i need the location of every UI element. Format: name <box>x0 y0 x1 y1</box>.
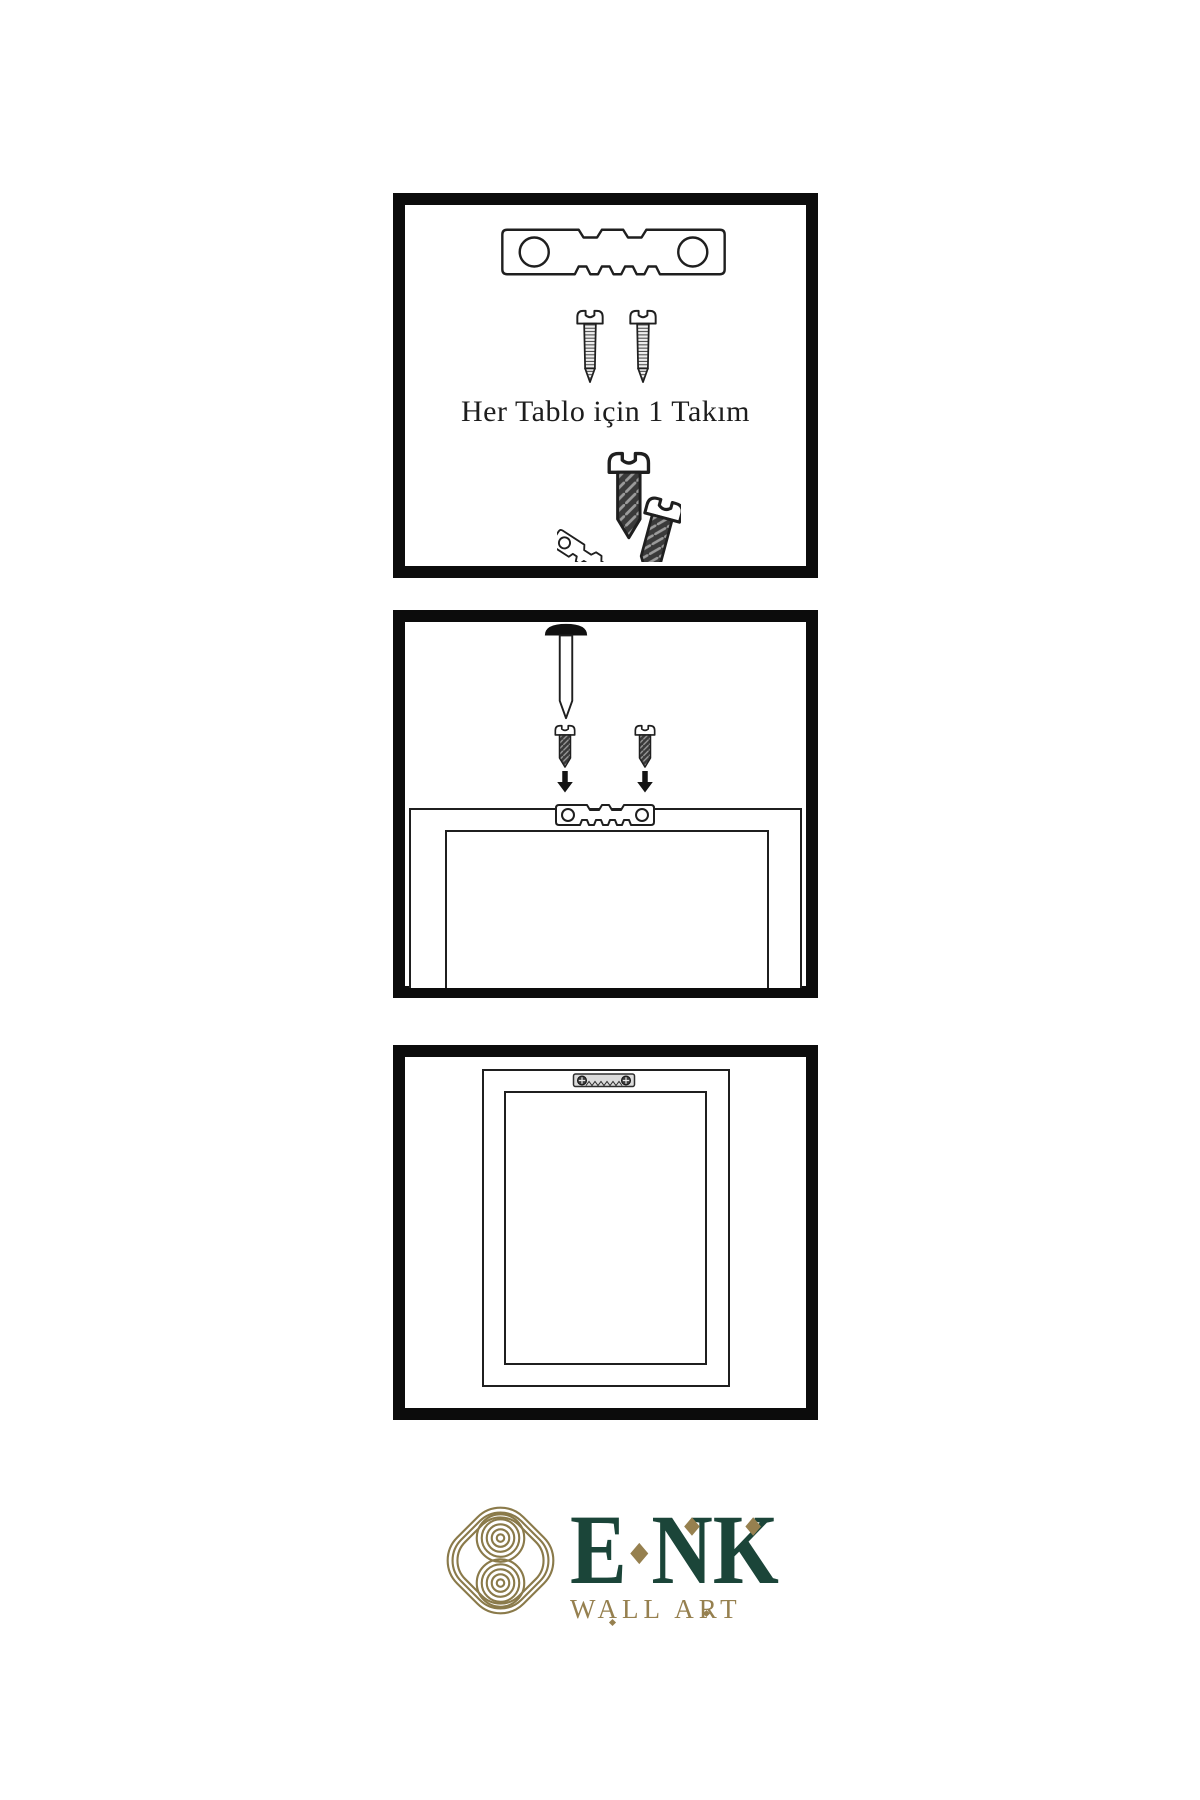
screw-icon <box>573 307 607 385</box>
mounted-sawtooth-hanger-icon <box>572 1072 636 1090</box>
frame-back-inner <box>445 830 769 988</box>
brand-letter-e: E <box>570 1500 627 1600</box>
arrow-down-icon <box>636 771 654 793</box>
panel-hanging-result <box>393 1045 818 1420</box>
nail-icon <box>542 622 590 722</box>
dark-screw-icon <box>632 723 658 769</box>
screw-icon <box>626 307 660 385</box>
dark-screw-icon <box>552 723 578 769</box>
brand-letter-k: K <box>713 1500 779 1600</box>
diamond-icon <box>630 1543 648 1564</box>
brand-logo: ENK WALL ART <box>438 1490 858 1670</box>
panel-mounting-step <box>393 610 818 998</box>
kit-caption: Her Tablo için 1 Takım <box>405 395 806 429</box>
panel-hardware-kit: Her Tablo için 1 Takım <box>393 193 818 578</box>
brand-subtitle: WALL ART <box>570 1594 742 1625</box>
sawtooth-hanger-icon <box>553 802 657 828</box>
sawtooth-hanger-icon <box>497 223 730 281</box>
brand-wordmark: ENK <box>570 1500 779 1600</box>
angled-hanger-with-screws-icon <box>557 448 681 562</box>
knot-logo-icon <box>438 1498 563 1623</box>
instruction-sheet: Her Tablo için 1 Takım <box>0 0 1200 1800</box>
arrow-down-icon <box>556 771 574 793</box>
brand-letter-n: N <box>651 1500 712 1600</box>
frame-back-inner <box>504 1091 707 1365</box>
